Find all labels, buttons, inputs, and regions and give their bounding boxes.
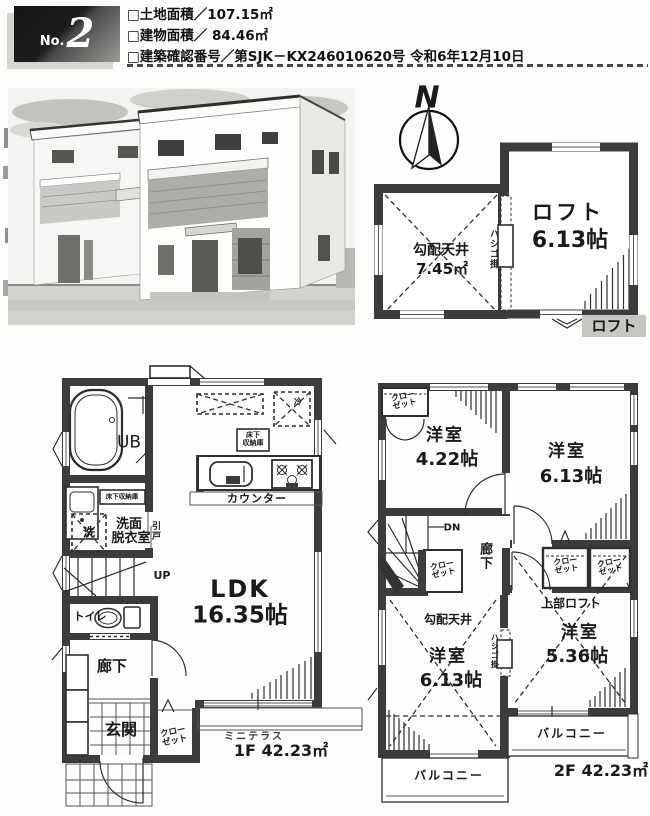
plan-linework xyxy=(0,0,650,816)
f1-ldk-name: LDK xyxy=(210,576,270,602)
north-label: N xyxy=(414,82,439,115)
f1-ub-label: UB xyxy=(117,434,141,453)
f2-room-ne-name: 洋室 xyxy=(548,443,586,462)
floorplan-flyer-page: No. 2 □土地面積／107.15㎡ □建物面積／ 84.46㎡ □建築確認番… xyxy=(0,0,650,816)
f1-up-label: UP xyxy=(154,570,171,582)
f2-room-sw-name: 洋室 xyxy=(429,648,467,667)
f2-room-ne-size: 6.13帖 xyxy=(540,467,602,487)
f2-room-sw-size: 6.13帖 xyxy=(420,671,482,691)
loft-room-name: ロフト xyxy=(532,201,604,224)
f2-room-se-size: 5.36帖 xyxy=(546,647,608,667)
f1-floor-area: 1F 42.23㎡ xyxy=(234,742,328,760)
f1-hall-label: 廊下 xyxy=(97,658,127,675)
f1-washer-label: 洗 xyxy=(83,526,95,539)
f1-entrance-label: 玄関 xyxy=(105,721,137,739)
f1-counter-label: カウンター xyxy=(227,493,287,505)
loft-ladder-label: ハシゴ掛 xyxy=(487,229,497,269)
f1-washroom-label-2: 脱衣室 xyxy=(111,532,150,546)
f2-room-nw-size: 4.22帖 xyxy=(416,450,478,470)
f2-floor-area: 2F 42.23㎡ xyxy=(554,762,648,780)
f1-ldk-storage-label-2: 収納庫 xyxy=(243,440,264,448)
f2-room-nw-name: 洋室 xyxy=(426,427,464,446)
f2-ladder-label: ハシゴ掛 xyxy=(490,633,499,669)
loft-tag: ロフト xyxy=(591,318,636,335)
f2-balcony-left-label: バルコニー xyxy=(414,769,484,782)
f2-sloped-ceiling-label: 勾配天井 xyxy=(424,613,472,626)
house-rendering-image xyxy=(8,88,355,325)
f1-ldk-size: 16.35帖 xyxy=(192,603,288,628)
f2-upper-loft-label: 上部ロフト xyxy=(541,597,601,610)
loft-sloped-ceiling-area: 7.45㎡ xyxy=(416,261,468,278)
loft-sloped-ceiling-label: 勾配天井 xyxy=(413,243,469,258)
f1-fridge-label: 冷 xyxy=(294,399,302,408)
f2-balcony-right-label: バルコニー xyxy=(537,727,607,740)
f2-dn-label: DN xyxy=(444,523,461,534)
f1-underfloor-storage-label: 床下収納庫 xyxy=(106,493,139,500)
f2-hall-label: 廊下 xyxy=(477,542,491,570)
f1-toilet-label: トイレ xyxy=(74,611,107,623)
f2-room-se-name: 洋室 xyxy=(561,624,599,643)
f2-closet-right-a-label: クローゼット xyxy=(553,556,579,576)
floor1-plan-lines xyxy=(52,366,362,806)
f1-sliding-door-label: 引戸 xyxy=(149,521,159,541)
loft-room-size: 6.13帖 xyxy=(532,229,608,253)
